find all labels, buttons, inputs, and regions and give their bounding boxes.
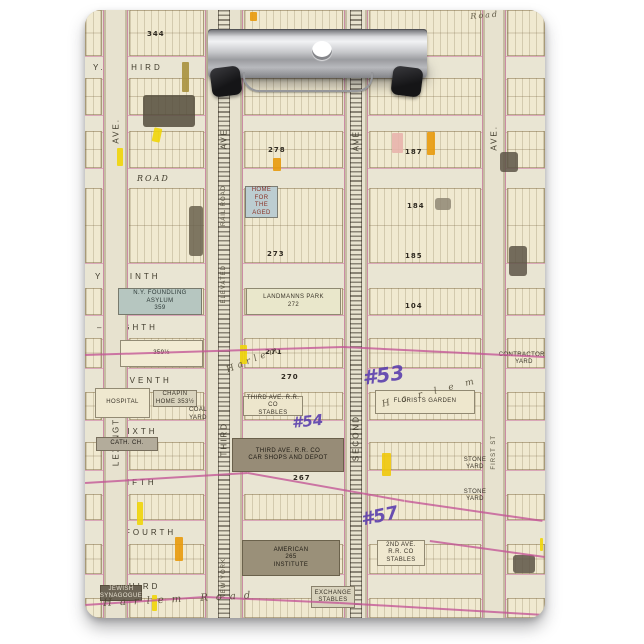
catholic-church: CATH. CH. bbox=[96, 437, 158, 451]
city-block-r0-c1 bbox=[129, 10, 204, 56]
first-ave-label-0: AVE. bbox=[490, 125, 499, 151]
third-ave-elevated-tracks bbox=[218, 10, 230, 618]
dark-building-4 bbox=[513, 555, 535, 573]
second-ave-rr-stables: 2ND AVE. R.R. CO STABLES bbox=[377, 540, 425, 566]
city-block-r4-c3 bbox=[369, 288, 481, 315]
city-block-r2-c1 bbox=[129, 131, 204, 168]
third-ave-elevated-label-1: RAIL ROAD bbox=[221, 185, 227, 226]
clip-wire-lever bbox=[243, 72, 373, 92]
clip-corner-grip-left bbox=[209, 65, 242, 97]
highlight-mark-0 bbox=[250, 12, 257, 21]
city-block-r10-c0 bbox=[85, 598, 102, 618]
street-label-road: ROAD bbox=[137, 175, 170, 183]
city-block-r0-c4 bbox=[507, 10, 545, 56]
block-number-187: 187 bbox=[405, 148, 423, 156]
city-block-r1-c0 bbox=[85, 78, 102, 115]
foundling-asylum: N.Y. FOUNDLING ASYLUM 359 bbox=[118, 288, 202, 315]
clip-hang-hole bbox=[312, 41, 332, 60]
stone-yard-2: STONE YARD bbox=[460, 490, 490, 502]
highlight-mark-1 bbox=[182, 62, 189, 92]
home-for-aged: HOME FOR THE AGED bbox=[245, 186, 278, 218]
city-block-r2-c2 bbox=[244, 131, 343, 168]
street-ninth: Y – NINTH bbox=[85, 263, 545, 290]
city-block-r0-c0 bbox=[85, 10, 102, 56]
city-block-r9-c0 bbox=[85, 544, 102, 574]
highlight-mark-5 bbox=[392, 133, 403, 153]
exchange-stables: EXCHANGE STABLES bbox=[311, 586, 355, 608]
hospital: HOSPITAL bbox=[95, 388, 150, 418]
second-ave-label-1: SECOND bbox=[352, 415, 361, 461]
highlight-mark-9 bbox=[137, 502, 143, 525]
american-institute: AMERICAN 265 INSTITUTE bbox=[242, 540, 340, 576]
city-block-r1-c4 bbox=[507, 78, 545, 115]
city-block-r3-c3 bbox=[369, 188, 481, 263]
city-block-r8-c0 bbox=[85, 494, 102, 520]
block-number-273: 273 bbox=[267, 250, 285, 258]
highlight-mark-6 bbox=[427, 132, 435, 155]
city-block-r4-c0 bbox=[85, 288, 102, 315]
second-ave-tracks bbox=[350, 10, 362, 618]
highlight-mark-10 bbox=[175, 537, 183, 561]
third-ave-elevated-label-0: AVE bbox=[220, 128, 229, 149]
first-ave: AVE.FIRST ST bbox=[482, 10, 506, 618]
clipboard-board: Y. – THIRDROADY – NINTH– EIGHTHSEVENTHSI… bbox=[85, 10, 545, 618]
dark-building-1 bbox=[189, 206, 203, 256]
block-number-184: 184 bbox=[407, 202, 425, 210]
chapin-home: CHAPIN HOME 353½ bbox=[153, 390, 197, 407]
highlight-mark-8 bbox=[382, 453, 391, 476]
city-block-r4-c4 bbox=[507, 288, 545, 315]
city-block-r2-c3 bbox=[369, 131, 481, 168]
city-block-r8-c2 bbox=[244, 494, 343, 520]
block-number-278: 278 bbox=[268, 146, 286, 154]
third-ave-elevated-label-3: THIRD bbox=[220, 422, 229, 456]
highlight-mark-3 bbox=[117, 148, 123, 166]
map-surface: Y. – THIRDROADY – NINTH– EIGHTHSEVENTHSI… bbox=[85, 10, 545, 618]
block-number-104: 104 bbox=[405, 302, 423, 310]
block-number-344: 344 bbox=[147, 30, 165, 38]
city-block-r3-c0 bbox=[85, 188, 102, 263]
clip-corner-grip-right bbox=[390, 65, 423, 97]
block-number-270: 270 bbox=[281, 373, 299, 381]
purple-annotation-1: #54 bbox=[291, 411, 324, 432]
dark-building-3 bbox=[509, 246, 527, 276]
third-ave-elevated: AVERAIL ROADELEVATEDTHIRDNEW YORK bbox=[205, 10, 243, 618]
lexington-ave-label-0: AVE. bbox=[111, 118, 120, 144]
stone-yard-1: STONE YARD bbox=[460, 458, 490, 470]
highlight-mark-4 bbox=[273, 158, 281, 171]
dark-building-0 bbox=[143, 95, 195, 127]
coal-yard: COAL YARD bbox=[185, 409, 211, 420]
dark-building-2 bbox=[500, 152, 518, 172]
landmanns-park: LANDMANNS PARK 272 bbox=[246, 288, 341, 315]
street-label-fourth: FOURTH bbox=[125, 529, 176, 537]
city-block-r9-c1 bbox=[129, 544, 204, 574]
third-ave-elevated-label-2: ELEVATED bbox=[221, 265, 227, 303]
street-road: ROAD bbox=[85, 168, 545, 190]
third-ave-car-shops: THIRD AVE. R.R. CO CAR SHOPS AND DEPOT bbox=[232, 438, 344, 472]
city-block-r6-c4 bbox=[507, 392, 545, 420]
street-eighth: – EIGHTH bbox=[85, 315, 545, 340]
highlight-mark-12 bbox=[540, 538, 543, 551]
city-block-r2-c0 bbox=[85, 131, 102, 168]
dark-building-5 bbox=[435, 198, 451, 210]
first-ave-label-1: FIRST ST bbox=[491, 435, 497, 470]
city-block-r7-c4 bbox=[507, 442, 545, 470]
second-ave-label-0: AVE bbox=[352, 130, 361, 151]
block-number-185: 185 bbox=[405, 252, 423, 260]
